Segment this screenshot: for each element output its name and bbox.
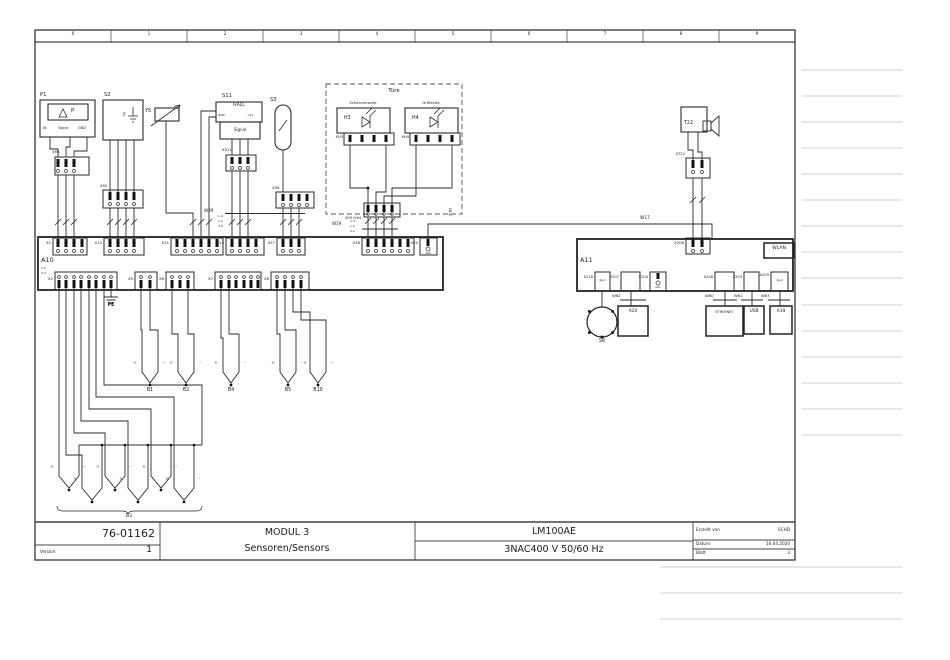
a10-xref-bottom: 3.4 [41, 272, 46, 275]
h3-ref: H3 [344, 117, 351, 122]
x209-4pol-label: 4pol [776, 279, 782, 282]
b3-staircase [59, 288, 202, 475]
w19-cond-3: 3.2 [350, 230, 355, 233]
grid-col-7: 7 [604, 32, 607, 36]
a11-board-ref: A11 [580, 257, 593, 264]
t22-wires [688, 132, 702, 239]
x58-connector-label: X58 [272, 186, 279, 190]
s2-symbol-group [103, 100, 143, 140]
x5-connector-label: X5 [128, 277, 133, 281]
sheet-xref-label: /5.B3 [449, 208, 452, 216]
b1-minus: - [163, 362, 165, 366]
w17-cable-label: W17 [640, 217, 650, 221]
door-handle-side: Griffseite [422, 101, 439, 105]
door-title: Türe [388, 89, 399, 94]
a10-xref-top: 1.2 [41, 267, 46, 270]
grid-col-1: 1 [148, 32, 151, 36]
grid-col-3: 3 [300, 32, 303, 36]
b5-label: B5 [285, 389, 291, 394]
ethernet-device-label: ETHERNET [715, 311, 733, 314]
title-sheet-value: 3 [787, 551, 790, 555]
margin-ruled-lines [660, 70, 902, 619]
b5-minus: - [300, 362, 302, 366]
x50-connector-label: X50 [411, 241, 418, 245]
x1-connector-label: X1 [46, 241, 51, 245]
p1-pin-gnd: GND [78, 127, 86, 130]
b3-s2-plus: + [73, 478, 77, 482]
y5-ref: Y5 [145, 109, 151, 114]
connector-outlines [53, 155, 788, 291]
b2-plus: + [169, 362, 173, 366]
b3-s2-minus: - [106, 478, 108, 482]
x52-connector-label: X52 [100, 184, 107, 188]
x203-connector-label: X203 [733, 276, 742, 280]
grid-col-6: 6 [528, 32, 531, 36]
x511-connector-label: X511 [222, 148, 232, 152]
title-power: 3NAC400 V 50/60 Hz [504, 545, 603, 555]
x13-connector-label: X13 [217, 241, 224, 245]
xh1-connector-label: XH1 [52, 150, 60, 154]
door-hinge-side: Scharnierseite [349, 101, 376, 105]
title-module: MODUL 3 [265, 528, 309, 538]
b3-s1-plus: + [50, 466, 54, 470]
s11-pin-5v: +5V [247, 114, 253, 117]
b2-label: B2 [183, 389, 189, 394]
xt22-connector-label: XT22 [676, 153, 685, 157]
b3-s6-plus: + [165, 478, 169, 482]
b10-plus: + [303, 362, 307, 366]
w63-cable-label: W63 [761, 294, 770, 298]
w29-cond-2: 1.5 [218, 220, 223, 223]
w62-cable-label: W62 [612, 294, 621, 298]
a20-device-label: A20 [629, 310, 638, 314]
a10-board-ref: A10 [41, 257, 54, 264]
s3-ref: S3 [270, 98, 276, 103]
xh3-connector-label: XH3 [336, 136, 343, 140]
s2-pe-label: PE [123, 112, 126, 116]
b10-label: B10 [313, 389, 322, 394]
junction-dots [68, 187, 370, 504]
x204-connector-label: X204 [639, 276, 648, 280]
grid-col-4: 4 [376, 32, 379, 36]
x207-connector-label: X207 [610, 276, 619, 280]
grid-col-0: 0 [72, 32, 75, 36]
device-boxes [587, 243, 794, 337]
x2-connector-label: X2 [48, 277, 53, 281]
s2-ref: S2 [104, 93, 111, 98]
p1-symbol: P [71, 109, 74, 115]
p1-pin-in: IN [43, 127, 47, 130]
grid-col-9: 9 [756, 32, 759, 36]
b3-s4-plus: + [119, 478, 123, 482]
schematic-page: 0 1 2 3 4 5 6 7 8 9 P1 P IN Signal GND X… [0, 0, 950, 660]
s11-pin-gnd: GND [218, 114, 225, 117]
w29-cond-3: 3.6 [218, 225, 223, 228]
p1-ref: P1 [40, 93, 46, 98]
w19-cond-1: 1.4 [350, 220, 355, 223]
title-created-label: Erstellt von [696, 528, 720, 532]
b4-minus: - [244, 362, 246, 366]
w19-cable-label: W19 [332, 222, 341, 226]
title-version-label: Version [40, 550, 55, 554]
x37-connector-label: X37 [268, 241, 275, 245]
title-date-value: 16.04.2020 [766, 542, 790, 546]
x38-connector-label: X38 [353, 241, 360, 245]
grid-col-5: 5 [452, 32, 455, 36]
grid-col-2: 2 [224, 32, 227, 36]
a19-device-label: A19 [777, 310, 786, 314]
wires [50, 111, 790, 515]
b4-plus: + [214, 362, 218, 366]
title-version-value: 1 [146, 546, 152, 555]
x8-connector-label: X8 [264, 277, 269, 281]
b4-label: B4 [228, 389, 234, 394]
title-date-label: Datum [696, 542, 710, 546]
x206-connector-label: X206 [674, 241, 684, 245]
b3-group-label: B3 [126, 515, 132, 520]
x218-6pol-label: 6pol [599, 279, 605, 282]
a11-down-wires [602, 291, 780, 307]
connector-sockets [57, 167, 704, 286]
x7-connector-label: X7 [208, 277, 213, 281]
x209-connector-label: X209 [760, 274, 769, 278]
b3-s5-plus: + [142, 466, 146, 470]
b1-label: B1 [147, 389, 153, 394]
xh4-connector-label: XH4 [402, 136, 409, 140]
wlan-label: WLAN [772, 247, 786, 252]
x218-connector-label: X218 [584, 276, 593, 280]
w60-cable-label: W60 [705, 294, 714, 298]
b3-s3-plus: + [96, 466, 100, 470]
wire-slashes [55, 197, 705, 225]
p1-pin-signal: Signal [58, 127, 68, 130]
x208-connector-label: X208 [704, 276, 713, 280]
title-device: LM100AE [532, 527, 576, 537]
b3-s6-minus: - [198, 478, 200, 482]
w29-cable-label: W29 [204, 209, 213, 213]
w29-cond-1: 1.4 [218, 215, 223, 218]
x11-connector-label: X11 [162, 241, 169, 245]
usb-device-label: USB [749, 310, 758, 314]
s3-symbol-group [275, 105, 291, 150]
x50-kol-label: KOL [426, 252, 431, 255]
h4-ref: H4 [412, 117, 419, 122]
s11-pin-signal: Signal [234, 128, 246, 132]
t22-ref: T22 [684, 122, 693, 127]
b3-s4-minus: - [152, 478, 154, 482]
door-wires [350, 145, 452, 239]
grid-col-8: 8 [680, 32, 683, 36]
s11-ref: S11 [222, 94, 232, 99]
b-sensor-feeds [141, 288, 326, 360]
w19-cond-2: 1.3 [350, 225, 355, 228]
x204-kol-label: KOL [655, 287, 660, 290]
b10-minus: - [331, 362, 333, 366]
s11-type: HALL [233, 104, 245, 109]
title-part-number: 76-01162 [102, 528, 155, 539]
s6-ref: S6 [599, 340, 605, 345]
schematic-drawing [0, 0, 950, 660]
x6-connector-label: X6 [159, 277, 164, 281]
w17-wire [428, 224, 712, 239]
door-area-group [326, 84, 462, 217]
title-module-subtitle: Sensoren/Sensors [245, 544, 330, 554]
b1-plus: + [133, 362, 137, 366]
title-created-by: SCHD [778, 528, 790, 532]
a10-pe-label: PE [108, 304, 115, 309]
b3-s5-minus: - [175, 466, 177, 470]
b3-s3-minus: - [129, 466, 131, 470]
b2-minus: - [199, 362, 201, 366]
b3-bus [79, 445, 202, 475]
y5-wire [166, 121, 193, 239]
b3-s1-minus: - [83, 466, 85, 470]
title-sheet-label: Blatt [696, 551, 706, 555]
p1-symbol-group [40, 100, 95, 137]
y5-symbol-group [151, 105, 180, 126]
t22-symbol-group [681, 107, 719, 178]
b5-plus: + [271, 362, 275, 366]
connector-pins [57, 135, 704, 288]
x12-connector-label: X12 [95, 241, 102, 245]
w61-cable-label: W61 [734, 294, 743, 298]
